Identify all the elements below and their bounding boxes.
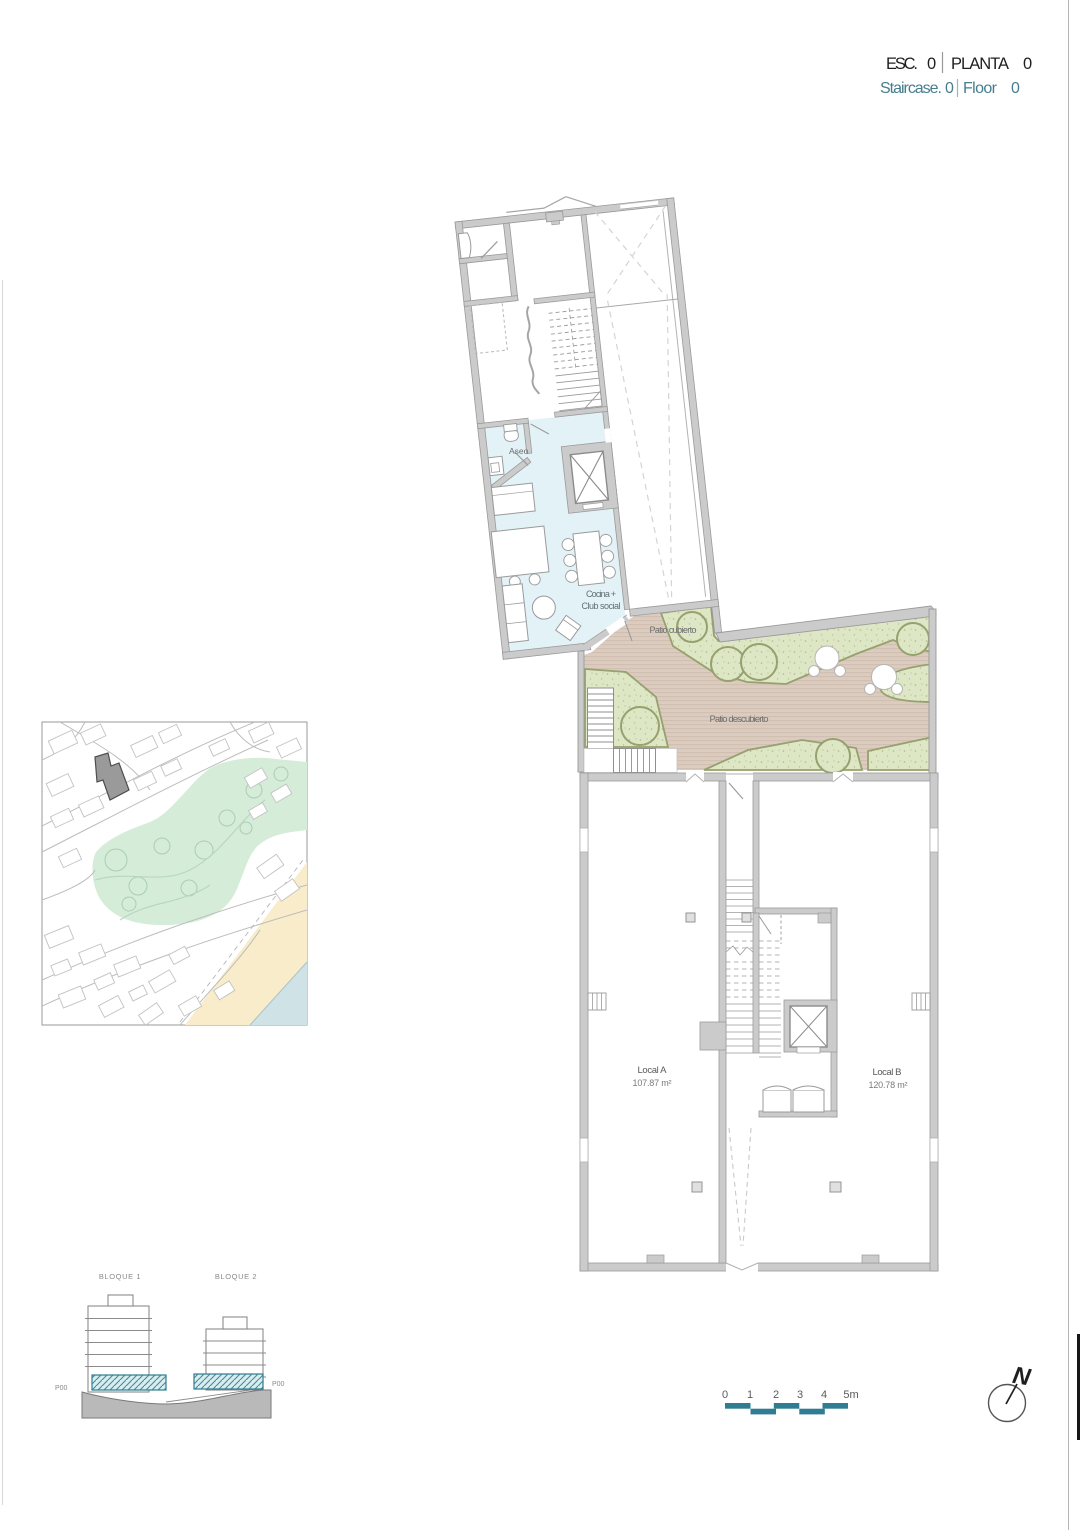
svg-text:Cocina +: Cocina +	[586, 589, 616, 599]
svg-text:Floor: Floor	[963, 80, 998, 97]
svg-text:0: 0	[927, 55, 936, 73]
svg-text:120.78 m²: 120.78 m²	[869, 1080, 908, 1090]
svg-text:5m: 5m	[843, 1389, 858, 1401]
svg-text:Staircase.: Staircase.	[880, 80, 942, 97]
svg-text:Local B: Local B	[873, 1067, 902, 1078]
svg-text:1: 1	[747, 1389, 753, 1401]
svg-text:P00: P00	[272, 1381, 285, 1388]
svg-text:Aseo: Aseo	[509, 446, 529, 456]
svg-text:4: 4	[821, 1389, 827, 1401]
svg-text:0: 0	[1011, 80, 1020, 97]
svg-text:0: 0	[945, 80, 954, 97]
svg-text:PLANTA: PLANTA	[951, 55, 1009, 73]
svg-text:Local A: Local A	[638, 1065, 668, 1076]
svg-text:Patio descubierto: Patio descubierto	[710, 714, 769, 725]
svg-text:107.87 m²: 107.87 m²	[633, 1078, 672, 1088]
svg-text:Club social: Club social	[582, 601, 621, 611]
svg-text:Patio cubierto: Patio cubierto	[650, 625, 697, 635]
svg-text:ESC.: ESC.	[886, 55, 918, 73]
svg-text:BLOQUE 1: BLOQUE 1	[99, 1272, 141, 1281]
svg-text:0: 0	[1023, 55, 1032, 73]
svg-text:0: 0	[722, 1389, 728, 1401]
svg-text:P00: P00	[55, 1385, 68, 1392]
svg-text:2: 2	[773, 1389, 779, 1401]
svg-text:3: 3	[797, 1389, 803, 1401]
svg-text:BLOQUE 2: BLOQUE 2	[215, 1272, 257, 1281]
